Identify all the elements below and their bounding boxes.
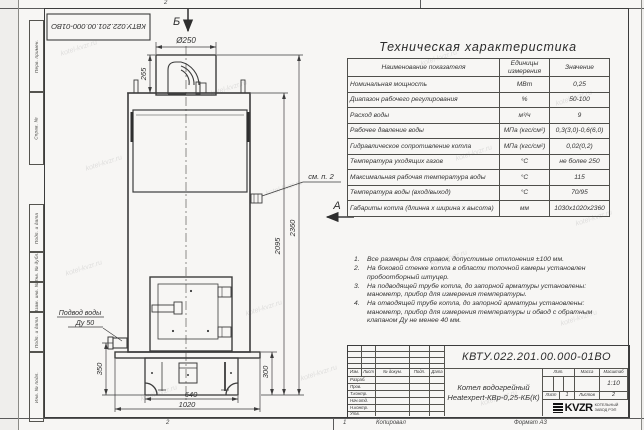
titleblock-header-row: Изм. Лист № докум. Подп. Дата: [348, 369, 445, 377]
margin-cell-sprav-no: Справ. №: [29, 92, 44, 165]
cell-name: Рабочее давление воды: [348, 123, 500, 139]
cell-name: Диапазон рабочего регулирования: [348, 92, 500, 108]
cell-unit: МПа (кгс/см²): [500, 139, 550, 155]
copied-label: Копировал: [376, 420, 406, 426]
cell-name: Гидравлическое сопротивление котла: [348, 139, 500, 155]
kvzr-logo-text: KVZR: [565, 402, 593, 414]
margin-label: Взам. инв. №: [34, 282, 39, 313]
product-name-line2: Heatexpert-КВр-0,25-КБ(К): [447, 393, 539, 403]
scale-label: Масштаб: [600, 369, 628, 377]
sign-row-razrab: Разраб.: [348, 377, 445, 384]
sign-label: Разраб.: [348, 377, 376, 384]
sheets-label: Листов: [575, 392, 600, 400]
cell-unit: %: [500, 92, 550, 108]
margin-cell-podp-data-2: Подп. и дата: [29, 312, 44, 352]
sign-label: Н.контр.: [348, 405, 376, 412]
sheet-left-edge: [18, 0, 19, 430]
sign-row-prov: Пров.: [348, 384, 445, 391]
cell-value: 50-100: [550, 92, 610, 108]
cell-value: 9: [550, 108, 610, 124]
sheet-row: Лист 1 Листов 2: [543, 392, 628, 400]
zone-tick-top: [420, 0, 421, 8]
note-text: На подводящей трубе котла, до запорной а…: [367, 283, 614, 300]
col-list: Лист: [362, 369, 376, 377]
sheets-value: 2: [600, 392, 628, 400]
cell-value: 115: [550, 170, 610, 186]
cell-value: 1030х1020х2360: [550, 201, 610, 217]
table-row: Номинальная мощностьМВт0,25: [348, 77, 610, 93]
table-row: Рабочее давление водыМПа (кгс/см²)0,3(3,…: [348, 123, 610, 139]
cell-unit: МПа (кгс/см²): [500, 123, 550, 139]
tech-table-title: Техническая характеристика: [347, 40, 609, 54]
margin-cell-perv-primen: Перв. примен.: [29, 20, 44, 92]
kvzr-logo-subtext: КОТЕЛЬНЫЙ ЗАВОД РЭП: [595, 403, 619, 412]
zone-number-top: 2: [164, 0, 167, 6]
notes-list: 1.Все размеры для справок, допустимые от…: [352, 256, 614, 326]
margin-label: Подп. и дата: [34, 316, 39, 347]
col-izm: Изм.: [348, 369, 362, 377]
cell-value: 70/95: [550, 185, 610, 201]
col-header-value: Значение: [550, 59, 610, 77]
tech-header-row: Наименование показателя Единицы измерени…: [348, 59, 610, 77]
format-label: Формат А3: [514, 420, 547, 426]
sign-label: Утв.: [348, 412, 376, 416]
note-item: 1.Все размеры для справок, допустимые от…: [352, 256, 614, 264]
cell-unit: м³/ч: [500, 108, 550, 124]
zone-tick-bottom: [333, 418, 334, 430]
cell-unit: °С: [500, 154, 550, 170]
table-row: Максимальная рабочая температура воды°С1…: [348, 170, 610, 186]
cell-unit: мм: [500, 201, 550, 217]
sign-row-utv: Утв.: [348, 412, 445, 416]
cell-value: 0,25: [550, 77, 610, 93]
table-row: Расход водым³/ч9: [348, 108, 610, 124]
kvzr-sub-line2: ЗАВОД РЭП: [595, 408, 619, 413]
col-podp: Подп.: [410, 369, 430, 377]
cell-name: Габариты котла (длинна х ширина х высота…: [348, 201, 500, 217]
kvzr-logo-icon: [553, 403, 563, 413]
cell-name: Максимальная рабочая температура воды: [348, 170, 500, 186]
cell-value: 0,02(0,2): [550, 139, 610, 155]
note-number: 2.: [352, 265, 367, 282]
cell-unit: °С: [500, 170, 550, 186]
sign-label: Т.контр.: [348, 391, 376, 398]
drawing-sheet: kotel-kvzr.ru kotel-kvzr.ru kotel-kvzr.r…: [0, 0, 644, 430]
margin-cell-inv-podl: Инв. № подл.: [29, 352, 44, 422]
scale-value: 1:10: [600, 377, 628, 392]
table-row: Гидравлическое сопротивление котлаМПа (к…: [348, 139, 610, 155]
note-number: 1.: [352, 256, 367, 264]
frame-bottom-line: [0, 418, 644, 419]
margin-label: Перв. примен.: [34, 39, 39, 72]
cell-unit: МВт: [500, 77, 550, 93]
col-header-units: Единицы измерения: [500, 59, 550, 77]
col-header-name: Наименование показателя: [348, 59, 500, 77]
cell-unit: °С: [500, 185, 550, 201]
table-row: Габариты котла (длинна х ширина х высота…: [348, 201, 610, 217]
note-item: 2.На боковой стенке котла в области топо…: [352, 265, 614, 282]
title-block: Изм. Лист № докум. Подп. Дата Разраб. Пр…: [347, 345, 630, 418]
cell-name: Температура воды (вход/выход): [348, 185, 500, 201]
note-text: На боковой стенке котла в области топочн…: [367, 265, 614, 282]
cell-value: 0,3(3,0)-0,6(6,0): [550, 123, 610, 139]
sign-label: Пров.: [348, 384, 376, 391]
col-data: Дата: [430, 369, 445, 377]
company-logo: KVZR КОТЕЛЬНЫЙ ЗАВОД РЭП: [543, 400, 628, 416]
lit-mass-scale-header: Лит. Масса Масштаб: [543, 369, 628, 377]
margin-label: Инв. № дубл.: [34, 252, 39, 283]
product-name: Котел водогрейный Heatexpert-КВр-0,25-КБ…: [445, 369, 543, 416]
margin-label: Подп. и дата: [34, 212, 39, 243]
margin-cell-podp-data-1: Подп. и дата: [29, 204, 44, 252]
note-number: 4.: [352, 300, 367, 325]
col-docnum: № докум.: [376, 369, 410, 377]
note-number: 3.: [352, 283, 367, 300]
sign-row-tkontr: Т.контр.: [348, 391, 445, 398]
sign-row-nkontr: Н.контр.: [348, 405, 445, 412]
note-item: 3.На подводящей трубе котла, до запорной…: [352, 283, 614, 300]
margin-cell-inv-dubl: Инв. № дубл.: [29, 252, 44, 282]
cell-name: Расход воды: [348, 108, 500, 124]
document-number: КВТУ.022.201.00.000-01ВО: [445, 346, 628, 369]
sheet-right-edge: [641, 0, 642, 430]
cell-name: Номинальная мощность: [348, 77, 500, 93]
margin-label: Справ. №: [34, 117, 39, 139]
table-row: Температура уходящих газов°Сне более 250: [348, 154, 610, 170]
zone-number-bottom-right: 1: [343, 420, 346, 426]
note-item: 4.На отводящей трубе котла, до запорной …: [352, 300, 614, 325]
sign-label: Нач.отд.: [348, 398, 376, 405]
note-text: Все размеры для справок, допустимые откл…: [367, 256, 564, 264]
sheet-label: Лист: [543, 392, 560, 400]
cell-value: не более 250: [550, 154, 610, 170]
margin-label: Инв. № подл.: [34, 372, 39, 403]
cell-name: Температура уходящих газов: [348, 154, 500, 170]
sheet-value: 1: [560, 392, 575, 400]
zone-number-bottom-left: 2: [166, 420, 169, 426]
sign-row-nachotd: Нач.отд.: [348, 398, 445, 405]
product-name-line1: Котел водогрейный: [457, 383, 529, 393]
table-row: Диапазон рабочего регулирования%50-100: [348, 92, 610, 108]
margin-cell-vzam-inv: Взам. инв. №: [29, 282, 44, 312]
lit-label: Лит.: [543, 369, 575, 377]
tech-table: Наименование показателя Единицы измерени…: [347, 58, 610, 217]
mass-label: Масса: [575, 369, 600, 377]
lit-mass-scale-values: 1:10: [543, 377, 628, 392]
tech-characteristics: Техническая характеристика Наименование …: [347, 40, 609, 217]
note-text: На отводящей трубе котла, до запорной ар…: [367, 300, 614, 325]
table-row: Температура воды (вход/выход)°С70/95: [348, 185, 610, 201]
